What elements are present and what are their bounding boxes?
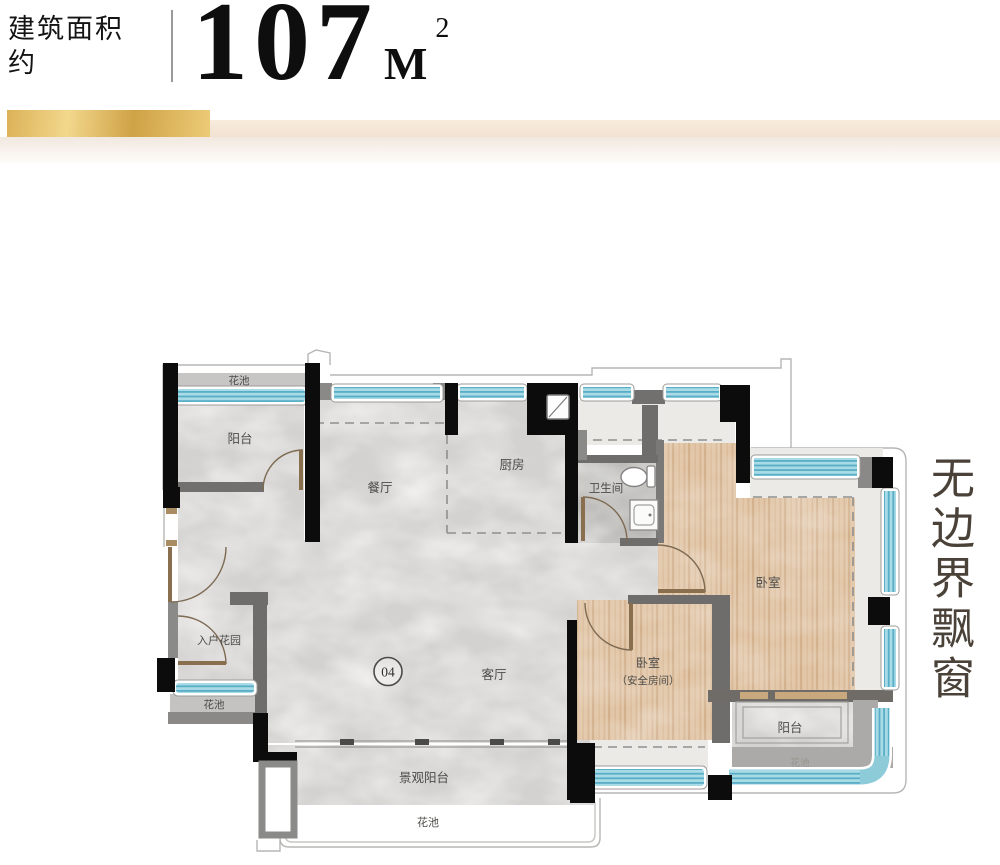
gold-accent-bar bbox=[7, 110, 210, 137]
label-living-room: 客厅 bbox=[481, 667, 506, 682]
area-unit: M bbox=[384, 38, 427, 89]
column bbox=[262, 764, 294, 835]
area-label-line1: 建筑面积 bbox=[8, 14, 124, 44]
beige-accent-bar bbox=[210, 120, 1000, 137]
label-bedroom-right: 卧室 bbox=[755, 575, 780, 590]
bay-window-strip bbox=[751, 455, 860, 479]
area-value: 107M2 bbox=[192, 0, 455, 127]
bay-window-strip bbox=[881, 626, 899, 690]
label-bedroom-safe-note: （安全房间） bbox=[617, 674, 680, 687]
label-flower-bed-left: 花池 bbox=[204, 698, 225, 711]
label-flower-bed-bottom: 花池 bbox=[417, 816, 439, 829]
label-flower-bed-top: 花池 bbox=[229, 374, 250, 387]
area-label-line2: 约 bbox=[8, 48, 37, 78]
area-label: 建筑面积 约 bbox=[8, 12, 124, 80]
window-strip bbox=[457, 384, 527, 401]
window-strip bbox=[663, 384, 722, 401]
label-landscape-balcony: 景观阳台 bbox=[399, 770, 449, 785]
label-bedroom-safe: 卧室 bbox=[636, 655, 660, 670]
area-superscript: 2 bbox=[435, 13, 455, 44]
kitchen-sink bbox=[547, 395, 569, 419]
toilet-icon bbox=[621, 466, 655, 487]
label-balcony-bottom-right: 阳台 bbox=[777, 720, 802, 735]
poster-page: 建筑面积 约 107M2 无边界飘窗 bbox=[0, 0, 1000, 865]
window-strip bbox=[331, 384, 443, 402]
bay-window-strip bbox=[881, 488, 899, 595]
floorplan: 04 花池 阳台 餐厅 厨房 卫生间 卧室 入户花园 花池 客厅 卧室 （安全房… bbox=[140, 345, 915, 860]
label-flower-bed-bottom-right: 花池 bbox=[790, 757, 810, 769]
window-strip bbox=[591, 766, 707, 789]
header-divider bbox=[171, 10, 173, 82]
bay-window-note: 无边界飘窗 bbox=[916, 455, 980, 705]
unit-number-badge: 04 bbox=[374, 658, 402, 686]
unit-number: 04 bbox=[381, 665, 395, 680]
label-entry-garden: 入户花园 bbox=[197, 633, 241, 647]
area-number: 107 bbox=[192, 0, 378, 104]
window-strip bbox=[580, 384, 634, 401]
window-strip bbox=[169, 386, 308, 405]
sink-icon bbox=[630, 500, 658, 530]
label-dining-room: 餐厅 bbox=[367, 480, 392, 495]
label-bathroom: 卫生间 bbox=[589, 481, 624, 495]
window-strip bbox=[173, 680, 257, 696]
fade-gradient bbox=[0, 137, 1000, 163]
label-balcony-top-left: 阳台 bbox=[227, 431, 252, 446]
label-kitchen: 厨房 bbox=[499, 457, 524, 472]
